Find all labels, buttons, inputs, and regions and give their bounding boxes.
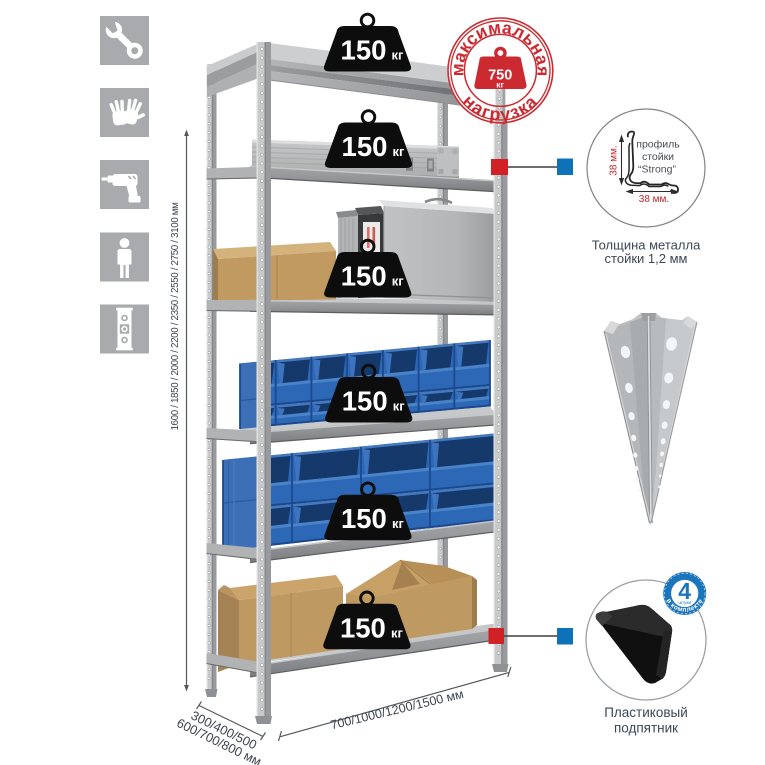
svg-text:Пластиковый: Пластиковый <box>604 705 688 720</box>
svg-text:кг: кг <box>392 516 405 531</box>
svg-text:кг: кг <box>392 274 405 289</box>
svg-text:38 мм.: 38 мм. <box>639 194 669 205</box>
svg-text:150: 150 <box>341 503 387 534</box>
svg-text:штуки: штуки <box>678 600 691 605</box>
svg-text:кг: кг <box>393 399 406 414</box>
svg-text:стойки: стойки <box>642 151 674 163</box>
svg-text:профиль: профиль <box>636 139 680 151</box>
svg-text:150: 150 <box>341 261 387 292</box>
svg-text:подпятник: подпятник <box>614 721 678 736</box>
svg-text:“Strong”: “Strong” <box>638 164 676 176</box>
svg-text:1600 / 1850 / 2000 / 2200 / 23: 1600 / 1850 / 2000 / 2200 / 2350 / 2550 … <box>170 202 181 431</box>
svg-text:38 мм.: 38 мм. <box>609 145 620 175</box>
svg-text:кг: кг <box>393 144 406 159</box>
svg-text:150: 150 <box>340 612 386 643</box>
svg-text:кг: кг <box>391 625 404 640</box>
svg-text:150: 150 <box>341 35 387 66</box>
svg-text:кг: кг <box>496 80 504 90</box>
svg-text:150: 150 <box>342 131 388 162</box>
svg-text:кг: кг <box>392 48 405 63</box>
svg-text:стойки 1,2 мм: стойки 1,2 мм <box>605 251 688 266</box>
svg-text:150: 150 <box>342 386 388 417</box>
